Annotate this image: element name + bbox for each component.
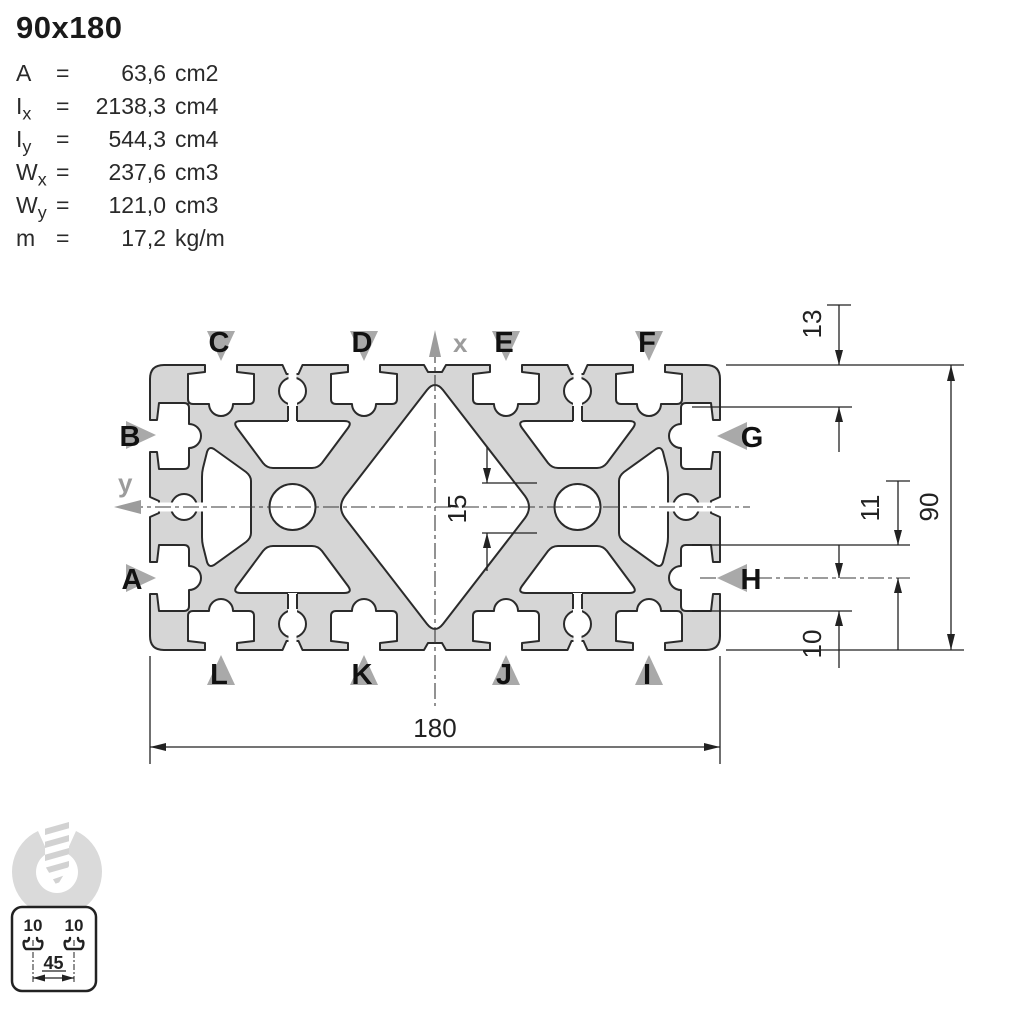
catalog-page: 90x180 A = 63,6 cm2 Ix = 2138,3 cm4 Iy =…	[0, 0, 1024, 1024]
slot-label-left: A	[122, 564, 143, 596]
arrowhead	[150, 743, 166, 751]
dimension-height-value: 90	[914, 493, 944, 522]
arrowhead	[835, 563, 843, 578]
arrowhead	[894, 530, 902, 545]
keyhole-neck	[574, 634, 582, 644]
slot-label-bottom: K	[352, 659, 373, 691]
slot-label-bottom: L	[210, 659, 228, 691]
slot-label-top: E	[494, 327, 513, 359]
slot-label-bottom: I	[643, 659, 651, 691]
arrowhead	[835, 350, 843, 365]
keyhole-chamber	[564, 611, 591, 638]
dimension-11: 11	[692, 481, 910, 650]
y-axis-arrow-icon	[114, 500, 141, 514]
arrowhead	[835, 407, 843, 422]
keyhole-neck	[288, 402, 297, 422]
legend-pitch-value: 45	[43, 953, 63, 973]
keyhole-chamber	[564, 378, 591, 405]
dimension-13-value: 13	[797, 310, 827, 339]
keyhole-neck	[574, 371, 582, 381]
legend-slot-size-left: 10	[24, 916, 43, 935]
dimension-15-value: 15	[442, 495, 472, 524]
arrowhead	[704, 743, 720, 751]
dimension-width-180: 180	[150, 656, 720, 764]
slot-label-top: F	[638, 327, 656, 359]
keyhole-neck	[288, 593, 297, 613]
legend-slot-size-right: 10	[65, 916, 84, 935]
keyhole-neck	[289, 634, 297, 644]
slot-label-right: H	[741, 564, 762, 596]
arrowhead	[947, 365, 955, 381]
slot-label-right: G	[741, 422, 764, 454]
slot-label-bottom: J	[496, 659, 512, 691]
slot-label-top: D	[352, 327, 373, 359]
profile-drawing: x y 180 90 13	[0, 0, 1024, 1024]
slot-label-left: B	[120, 421, 141, 453]
dimension-11-value: 11	[855, 495, 885, 522]
y-axis-label: y	[118, 468, 133, 498]
dimension-10-value: 10	[797, 630, 827, 659]
watermark-screw	[41, 814, 73, 888]
keyhole-chamber	[279, 611, 306, 638]
dimension-height-90: 90	[726, 365, 964, 650]
dimension-width-value: 180	[413, 713, 456, 743]
slot-label-top: C	[209, 327, 230, 359]
arrowhead	[947, 634, 955, 650]
x-axis-arrow-icon	[429, 330, 441, 357]
slot-system-legend: 10 10 45	[12, 907, 96, 991]
keyhole-neck	[573, 402, 582, 422]
arrowhead	[894, 578, 902, 593]
keyhole-chamber	[279, 378, 306, 405]
arrowhead	[835, 611, 843, 626]
keyhole-neck	[573, 593, 582, 613]
keyhole-neck	[289, 371, 297, 381]
x-axis-label: x	[453, 328, 468, 358]
brand-watermark-icon	[12, 814, 102, 917]
